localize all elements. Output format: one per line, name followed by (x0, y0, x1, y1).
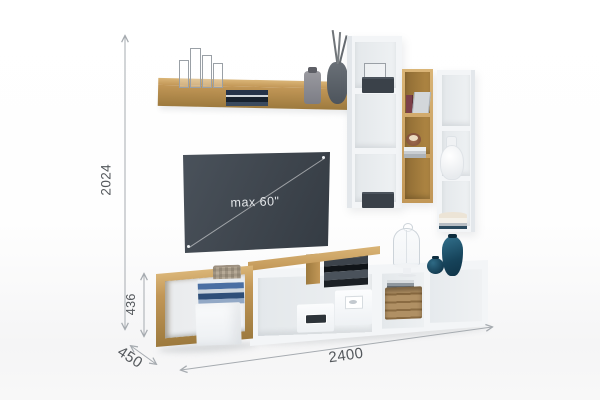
dim-label-depth: 450 (107, 339, 152, 376)
decor-branch-vase (327, 62, 348, 104)
decor-box-dark-top (362, 77, 394, 93)
decor-books-shelf (226, 90, 268, 106)
decor-box-dark-bottom (362, 192, 394, 208)
decor-white-gift-box (195, 302, 241, 346)
decor-glass-jar (304, 71, 321, 104)
decor-bowls (439, 212, 467, 229)
decor-wire-candleholders (179, 50, 223, 88)
tv-diagonal-endpoint (322, 156, 325, 159)
dim-label-total-width: 2400 (317, 344, 375, 367)
dim-label-stand-height: 436 (125, 283, 138, 325)
tv-screen: max 60" (183, 150, 331, 254)
decor-books-stack-stand (198, 278, 245, 305)
tv-max-size-label: max 60" (205, 193, 305, 210)
decor-teal-vase-tall (442, 236, 463, 276)
tv-diagonal-endpoint (187, 245, 190, 248)
decor-magazines (412, 92, 431, 113)
decor-white-box-large (335, 289, 372, 325)
scene: max 60" (0, 0, 600, 400)
stand-compartment (430, 269, 482, 323)
decor-books-cabinet (404, 147, 426, 158)
decor-glass-cloche (393, 228, 421, 278)
decor-white-box-small (297, 303, 334, 332)
decor-white-vase (440, 145, 464, 180)
decor-oak-crate (385, 286, 422, 319)
decor-candle (406, 133, 421, 146)
wall-cabinet-white-tall (347, 36, 402, 208)
dim-label-total-height: 2024 (99, 158, 113, 202)
decor-teal-vase-small (427, 258, 444, 274)
decor-branches (330, 30, 348, 66)
